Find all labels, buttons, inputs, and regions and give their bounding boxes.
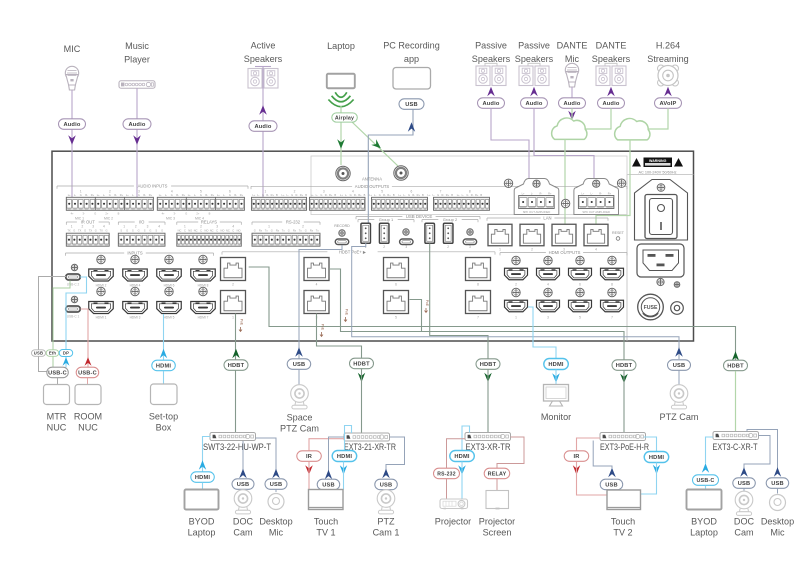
svg-text:Cam 1: Cam 1 [373,527,400,537]
svg-text:L-: L- [132,193,134,197]
svg-text:L-: L- [432,193,434,197]
svg-text:Group 2: Group 2 [443,217,458,222]
svg-text:7: 7 [611,316,613,320]
svg-text:R+: R+ [475,193,479,197]
svg-text:R+: R+ [91,193,95,197]
svg-text:Laptop: Laptop [188,527,216,537]
svg-text:R+: R+ [149,193,153,197]
svg-text:FUSE: FUSE [644,305,658,311]
svg-text:Laptop: Laptop [690,527,718,537]
svg-text:RESET: RESET [612,231,625,235]
svg-text:DANTE: DANTE [557,41,588,51]
svg-text:HDBT: HDBT [616,363,633,369]
svg-text:ROOM: ROOM [74,412,102,422]
svg-text:R+: R+ [417,193,421,197]
svg-text:Desktop: Desktop [259,517,292,527]
svg-text:NC: NC [178,229,182,233]
svg-text:R-: R- [325,193,328,197]
svg-text:R-: R- [114,193,117,197]
svg-text:TX: TX [89,229,93,233]
svg-text:R+: R+ [182,193,186,197]
svg-text:3: 3 [138,190,140,194]
svg-text:L+: L+ [581,192,584,196]
svg-text:1: 1 [515,316,517,320]
svg-text:HDBT: HDBT [480,362,497,368]
svg-text:3: 3 [216,225,218,229]
svg-text:HDBT PoE+ ▶: HDBT PoE+ ▶ [339,249,367,254]
svg-text:C: C [184,229,186,233]
svg-text:HDMI 1: HDMI 1 [96,316,107,320]
svg-text:Audio: Audio [128,122,145,128]
svg-text:Speakers: Speakers [472,54,511,64]
svg-text:B: B [305,193,307,197]
svg-text:RS-232: RS-232 [286,220,301,225]
svg-text:G: G [262,193,264,197]
svg-text:R-: R- [599,192,602,196]
svg-text:EXT3-PoE-H-R: EXT3-PoE-H-R [600,442,649,452]
svg-text:USB DEVICE: USB DEVICE [406,214,433,219]
svg-text:3-: 3- [83,212,85,216]
svg-text:G: G [185,212,187,216]
svg-text:L-: L- [165,193,167,197]
svg-text:Audio: Audio [482,101,499,107]
svg-text:Desktop: Desktop [761,517,794,527]
svg-text:USB: USB [605,483,618,489]
svg-text:Eth: Eth [49,351,57,356]
svg-text:G: G [73,229,75,233]
svg-text:R+: R+ [271,193,275,197]
svg-text:TV 2: TV 2 [613,527,632,537]
svg-text:R-: R- [354,193,357,197]
svg-text:6: 6 [410,190,412,194]
svg-text:3: 3 [323,190,325,194]
svg-text:R-: R- [234,193,237,197]
svg-text:4: 4 [103,225,105,229]
svg-text:8: 8 [469,190,471,194]
svg-text:L+: L+ [398,193,401,197]
svg-text:G: G [320,193,322,197]
svg-text:USB: USB [771,481,784,487]
svg-text:Passive: Passive [475,41,507,51]
svg-text:L-: L- [316,193,318,197]
svg-text:G: G [437,193,439,197]
svg-text:4+: 4+ [162,212,165,216]
svg-text:R+: R+ [211,193,215,197]
svg-text:TX: TX [78,229,82,233]
svg-text:L-: L- [374,193,376,197]
svg-text:RELAY: RELAY [488,471,507,477]
svg-text:L-: L- [345,193,347,197]
svg-text:8: 8 [477,283,479,287]
svg-text:NC: NC [194,229,198,233]
svg-text:2: 2 [200,225,202,229]
svg-text:B: B [393,193,395,197]
svg-text:PTZ Cam: PTZ Cam [660,412,699,422]
svg-text:L+: L+ [457,193,460,197]
svg-text:HDMI 6: HDMI 6 [164,284,175,288]
svg-text:Space: Space [287,413,313,423]
svg-text:L-: L- [257,193,259,197]
svg-text:4: 4 [352,190,354,194]
svg-text:USB: USB [270,482,283,488]
svg-text:2: 2 [531,248,533,252]
svg-text:Active: Active [251,41,276,51]
svg-text:Audio: Audio [63,122,80,128]
svg-text:Projector: Projector [435,517,471,527]
svg-text:R-: R- [540,192,543,196]
svg-text:R+: R+ [387,193,391,197]
svg-text:S: S [120,229,122,233]
svg-text:Speakers: Speakers [244,54,283,64]
svg-text:B: B [480,193,482,197]
svg-text:R-: R- [471,193,474,197]
svg-text:G: G [94,212,96,216]
svg-text:PC Recording: PC Recording [383,41,440,51]
svg-text:2: 2 [383,245,385,249]
svg-text:G: G [229,193,231,197]
svg-text:H.264: H.264 [656,41,680,51]
svg-text:USB-C 1: USB-C 1 [67,315,80,319]
svg-text:MIC 3: MIC 3 [166,217,175,221]
svg-text:PoE: PoE [321,324,325,331]
svg-text:Projector: Projector [479,517,515,527]
svg-text:Player: Player [124,55,150,65]
svg-text:HDBT: HDBT [353,362,370,368]
svg-text:NC: NC [210,229,214,233]
svg-text:PoE: PoE [425,300,429,307]
svg-text:SPK OUT AMPLIFIED: SPK OUT AMPLIFIED [582,210,610,214]
svg-text:WARNING: WARNING [649,159,667,163]
svg-text:R-: R- [383,193,386,197]
svg-text:L-: L- [403,193,405,197]
svg-text:INPUTS: INPUTS [127,251,143,256]
svg-text:G: G [138,193,140,197]
svg-text:5: 5 [381,190,383,194]
svg-text:Music: Music [125,41,149,51]
svg-text:C: C [200,229,202,233]
svg-text:Set-top: Set-top [149,412,178,422]
svg-text:Passive: Passive [518,41,550,51]
svg-text:G: G [466,193,468,197]
svg-text:4: 4 [316,283,318,287]
svg-text:USB-C: USB-C [78,371,97,377]
svg-text:6: 6 [579,283,581,287]
svg-text:BYOD: BYOD [189,517,215,527]
svg-text:3: 3 [469,245,471,249]
svg-text:G: G [126,229,128,233]
svg-text:RECORD: RECORD [334,224,350,228]
svg-text:HDMI: HDMI [649,455,665,461]
svg-text:IR: IR [573,454,579,460]
svg-text:4: 4 [232,225,234,229]
svg-text:1: 1 [123,225,125,229]
svg-text:USB: USB [380,483,393,489]
svg-text:G: G [291,193,293,197]
svg-text:Audio: Audio [525,101,542,107]
svg-text:RELAYS: RELAYS [201,220,217,225]
svg-text:C: C [216,229,218,233]
svg-text:R-: R- [143,193,146,197]
svg-text:DOC: DOC [734,517,755,527]
svg-text:G: G [271,229,273,233]
svg-text:USB-C 2: USB-C 2 [67,283,80,287]
svg-text:Screen: Screen [483,527,512,537]
svg-text:B: B [118,212,120,216]
svg-text:3: 3 [92,225,94,229]
svg-text:2: 2 [109,190,111,194]
svg-text:L+: L+ [188,193,191,197]
svg-text:RS-232: RS-232 [437,471,455,477]
svg-text:B: B [276,193,278,197]
svg-text:L+: L+ [97,193,100,197]
svg-text:G: G [149,229,151,233]
svg-text:NO: NO [204,229,208,233]
svg-text:2: 2 [294,190,296,194]
svg-text:Box: Box [156,422,172,432]
svg-text:USB: USB [34,351,43,356]
svg-text:R-: R- [85,193,88,197]
svg-text:B: B [334,193,336,197]
svg-text:PTZ: PTZ [377,517,395,527]
svg-text:PTZ Cam: PTZ Cam [280,423,319,433]
svg-text:NO: NO [188,229,192,233]
svg-text:R+: R+ [300,193,304,197]
svg-text:G: G [109,193,111,197]
svg-text:2: 2 [232,283,234,287]
svg-text:Speakers: Speakers [515,54,554,64]
svg-text:1: 1 [71,225,73,229]
svg-text:S: S [132,229,134,233]
svg-text:L-: L- [462,193,464,197]
svg-text:Mic: Mic [269,527,284,537]
svg-text:1: 1 [184,225,186,229]
svg-text:USB: USB [293,362,306,368]
svg-text:Group 1: Group 1 [379,217,394,222]
svg-text:1: 1 [268,225,270,229]
svg-text:ANTENNA: ANTENNA [362,177,382,182]
svg-text:EXT3-XR-TR: EXT3-XR-TR [466,442,511,452]
svg-text:EXT3-C-XR-T: EXT3-C-XR-T [713,442,759,452]
svg-text:4: 4 [547,283,549,287]
svg-text:L-: L- [286,193,288,197]
svg-text:Audio: Audio [254,124,271,130]
svg-text:G: G [200,193,202,197]
svg-text:USB-C: USB-C [696,478,714,484]
svg-text:3-: 3- [174,212,176,216]
svg-text:USB-C: USB-C [48,371,67,377]
svg-text:R-: R- [296,193,299,197]
svg-text:HDMI 7: HDMI 7 [198,316,209,320]
svg-text:AVoIP: AVoIP [660,101,677,107]
svg-text:1: 1 [80,190,82,194]
svg-text:Mic: Mic [770,527,785,537]
svg-text:SPK OUT AMPLIFIED: SPK OUT AMPLIFIED [523,210,551,214]
svg-text:4: 4 [158,225,160,229]
svg-text:Touch: Touch [611,517,635,527]
svg-text:5: 5 [395,316,397,320]
svg-text:5: 5 [579,316,581,320]
svg-text:R+: R+ [548,192,552,196]
svg-text:3: 3 [405,245,407,249]
svg-text:1: 1 [499,248,501,252]
svg-text:HDMI: HDMI [454,454,470,460]
svg-text:R+: R+ [329,193,333,197]
svg-text:Airplay: Airplay [335,115,354,121]
svg-text:B: B [451,193,453,197]
svg-text:B: B [364,193,366,197]
svg-text:DANTE: DANTE [596,41,627,51]
svg-text:Speakers: Speakers [592,54,631,64]
svg-text:NUC: NUC [47,422,67,432]
svg-text:R+: R+ [358,193,362,197]
svg-text:AUDIO INPUTS: AUDIO INPUTS [138,184,168,189]
svg-text:L+: L+ [217,193,220,197]
svg-text:B: B [209,212,211,216]
svg-text:HDMI: HDMI [156,364,172,370]
svg-text:R+: R+ [608,192,612,196]
svg-text:S: S [144,229,146,233]
svg-text:HDMI: HDMI [195,475,211,481]
svg-text:R-: R- [205,193,208,197]
svg-text:G: G [350,193,352,197]
svg-text:1: 1 [232,316,234,320]
svg-text:DP: DP [63,351,69,356]
svg-text:TV 1: TV 1 [316,527,335,537]
svg-text:2: 2 [302,225,304,229]
svg-text:HDMI OUTPUTS: HDMI OUTPUTS [549,250,581,255]
svg-text:G: G [95,229,97,233]
svg-text:L+: L+ [126,193,129,197]
svg-text:2: 2 [81,225,83,229]
svg-text:G: G [138,229,140,233]
svg-text:8: 8 [611,283,613,287]
svg-text:NO: NO [237,229,241,233]
svg-text:4+: 4+ [71,212,74,216]
svg-text:Cam: Cam [734,527,753,537]
svg-text:G: G [254,229,256,233]
svg-text:R-: R- [442,193,445,197]
svg-text:L+: L+ [252,193,255,197]
svg-text:NC: NC [226,229,230,233]
svg-text:HDMI 3: HDMI 3 [130,316,141,320]
svg-text:AUDIO OUTPUTS: AUDIO OUTPUTS [355,184,390,189]
svg-text:PoE: PoE [345,309,349,316]
svg-text:L+: L+ [68,193,71,197]
svg-text:3: 3 [547,316,549,320]
svg-text:Laptop: Laptop [327,41,355,51]
svg-text:G: G [305,229,307,233]
svg-text:AC 100-240V 50/60Hz: AC 100-240V 50/60Hz [639,171,677,175]
svg-text:1: 1 [264,190,266,194]
svg-text:TX: TX [67,229,71,233]
svg-text:L+: L+ [428,193,431,197]
svg-text:HDMI 4: HDMI 4 [130,284,141,288]
svg-text:2: 2 [515,283,517,287]
svg-text:USB: USB [738,481,751,487]
svg-text:L-: L- [194,193,196,197]
svg-text:3: 3 [147,225,149,229]
svg-text:LAN: LAN [543,216,551,221]
svg-text:HDMI 8: HDMI 8 [198,284,209,288]
svg-text:R+: R+ [240,193,244,197]
svg-text:PoE: PoE [240,319,244,326]
svg-text:G: G [84,229,86,233]
svg-text:USB: USB [322,483,335,489]
svg-text:7: 7 [440,190,442,194]
svg-text:HDMI: HDMI [548,362,564,368]
svg-text:MIC: MIC [64,44,81,54]
svg-text:G: G [161,229,163,233]
svg-text:NO: NO [221,229,225,233]
svg-text:R+: R+ [446,193,450,197]
svg-text:L-: L- [74,193,76,197]
svg-text:G: G [408,193,410,197]
svg-text:USB: USB [673,363,686,369]
svg-text:Mic: Mic [565,54,580,64]
svg-text:L+: L+ [159,193,162,197]
svg-text:Streaming: Streaming [647,54,688,64]
svg-text:4: 4 [595,248,597,252]
svg-text:app: app [404,54,419,64]
svg-text:R-: R- [412,193,415,197]
svg-text:MTR: MTR [47,412,67,422]
svg-text:G: G [288,229,290,233]
svg-text:4: 4 [171,190,173,194]
svg-text:7: 7 [477,316,479,320]
svg-text:2+: 2+ [105,212,108,216]
svg-text:L+: L+ [311,193,314,197]
svg-text:G: G [171,193,173,197]
svg-text:HDBT: HDBT [727,364,744,370]
svg-text:NUC: NUC [78,422,98,432]
svg-text:L+: L+ [369,193,372,197]
svg-text:G: G [80,193,82,197]
svg-text:MIC 2: MIC 2 [104,217,113,221]
svg-text:R-: R- [266,193,269,197]
svg-text:HDBT: HDBT [228,363,245,369]
svg-text:Monitor: Monitor [541,412,571,422]
svg-text:5: 5 [200,190,202,194]
svg-text:G: G [105,229,107,233]
svg-text:2+: 2+ [196,212,199,216]
svg-text:C: C [232,229,234,233]
svg-text:L-: L- [223,193,225,197]
svg-text:USB: USB [405,102,418,108]
svg-text:L-: L- [531,192,533,196]
svg-text:SWT3-22-HU-WP-T: SWT3-22-HU-WP-T [203,442,272,452]
svg-text:Audio: Audio [563,101,580,107]
svg-text:BYOD: BYOD [691,517,717,527]
svg-text:R-: R- [176,193,179,197]
svg-text:B: B [422,193,424,197]
svg-text:6: 6 [395,283,397,287]
svg-text:Cam: Cam [233,527,252,537]
svg-text:G: G [379,193,381,197]
svg-text:Audio: Audio [602,101,619,107]
svg-text:HDMI 2: HDMI 2 [96,284,107,288]
svg-text:IR: IR [306,454,312,460]
svg-text:HDMI: HDMI [337,454,353,460]
svg-text:R+: R+ [120,193,124,197]
svg-text:S: S [155,229,157,233]
svg-text:6: 6 [229,190,231,194]
svg-text:DOC: DOC [233,517,254,527]
svg-text:L+: L+ [340,193,343,197]
svg-text:USB: USB [237,482,250,488]
svg-text:L-: L- [103,193,105,197]
svg-text:I/O: I/O [139,220,145,225]
svg-text:Touch: Touch [314,517,338,527]
